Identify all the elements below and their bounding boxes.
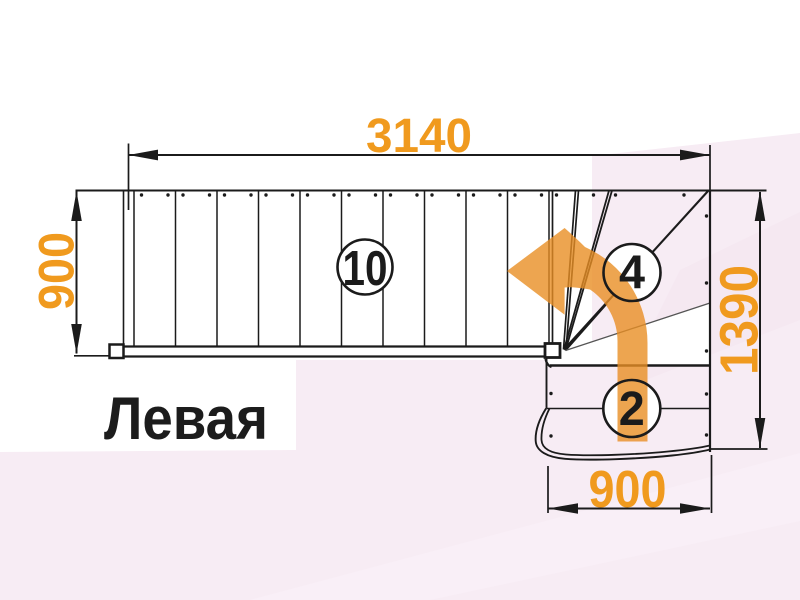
svg-text:2: 2 <box>619 382 645 436</box>
svg-text:1390: 1390 <box>710 265 770 375</box>
svg-text:Левая: Левая <box>104 385 268 452</box>
svg-text:900: 900 <box>29 232 85 310</box>
svg-text:900: 900 <box>589 461 667 519</box>
svg-text:10: 10 <box>343 242 388 296</box>
svg-text:3140: 3140 <box>366 109 472 163</box>
svg-text:4: 4 <box>619 245 645 298</box>
